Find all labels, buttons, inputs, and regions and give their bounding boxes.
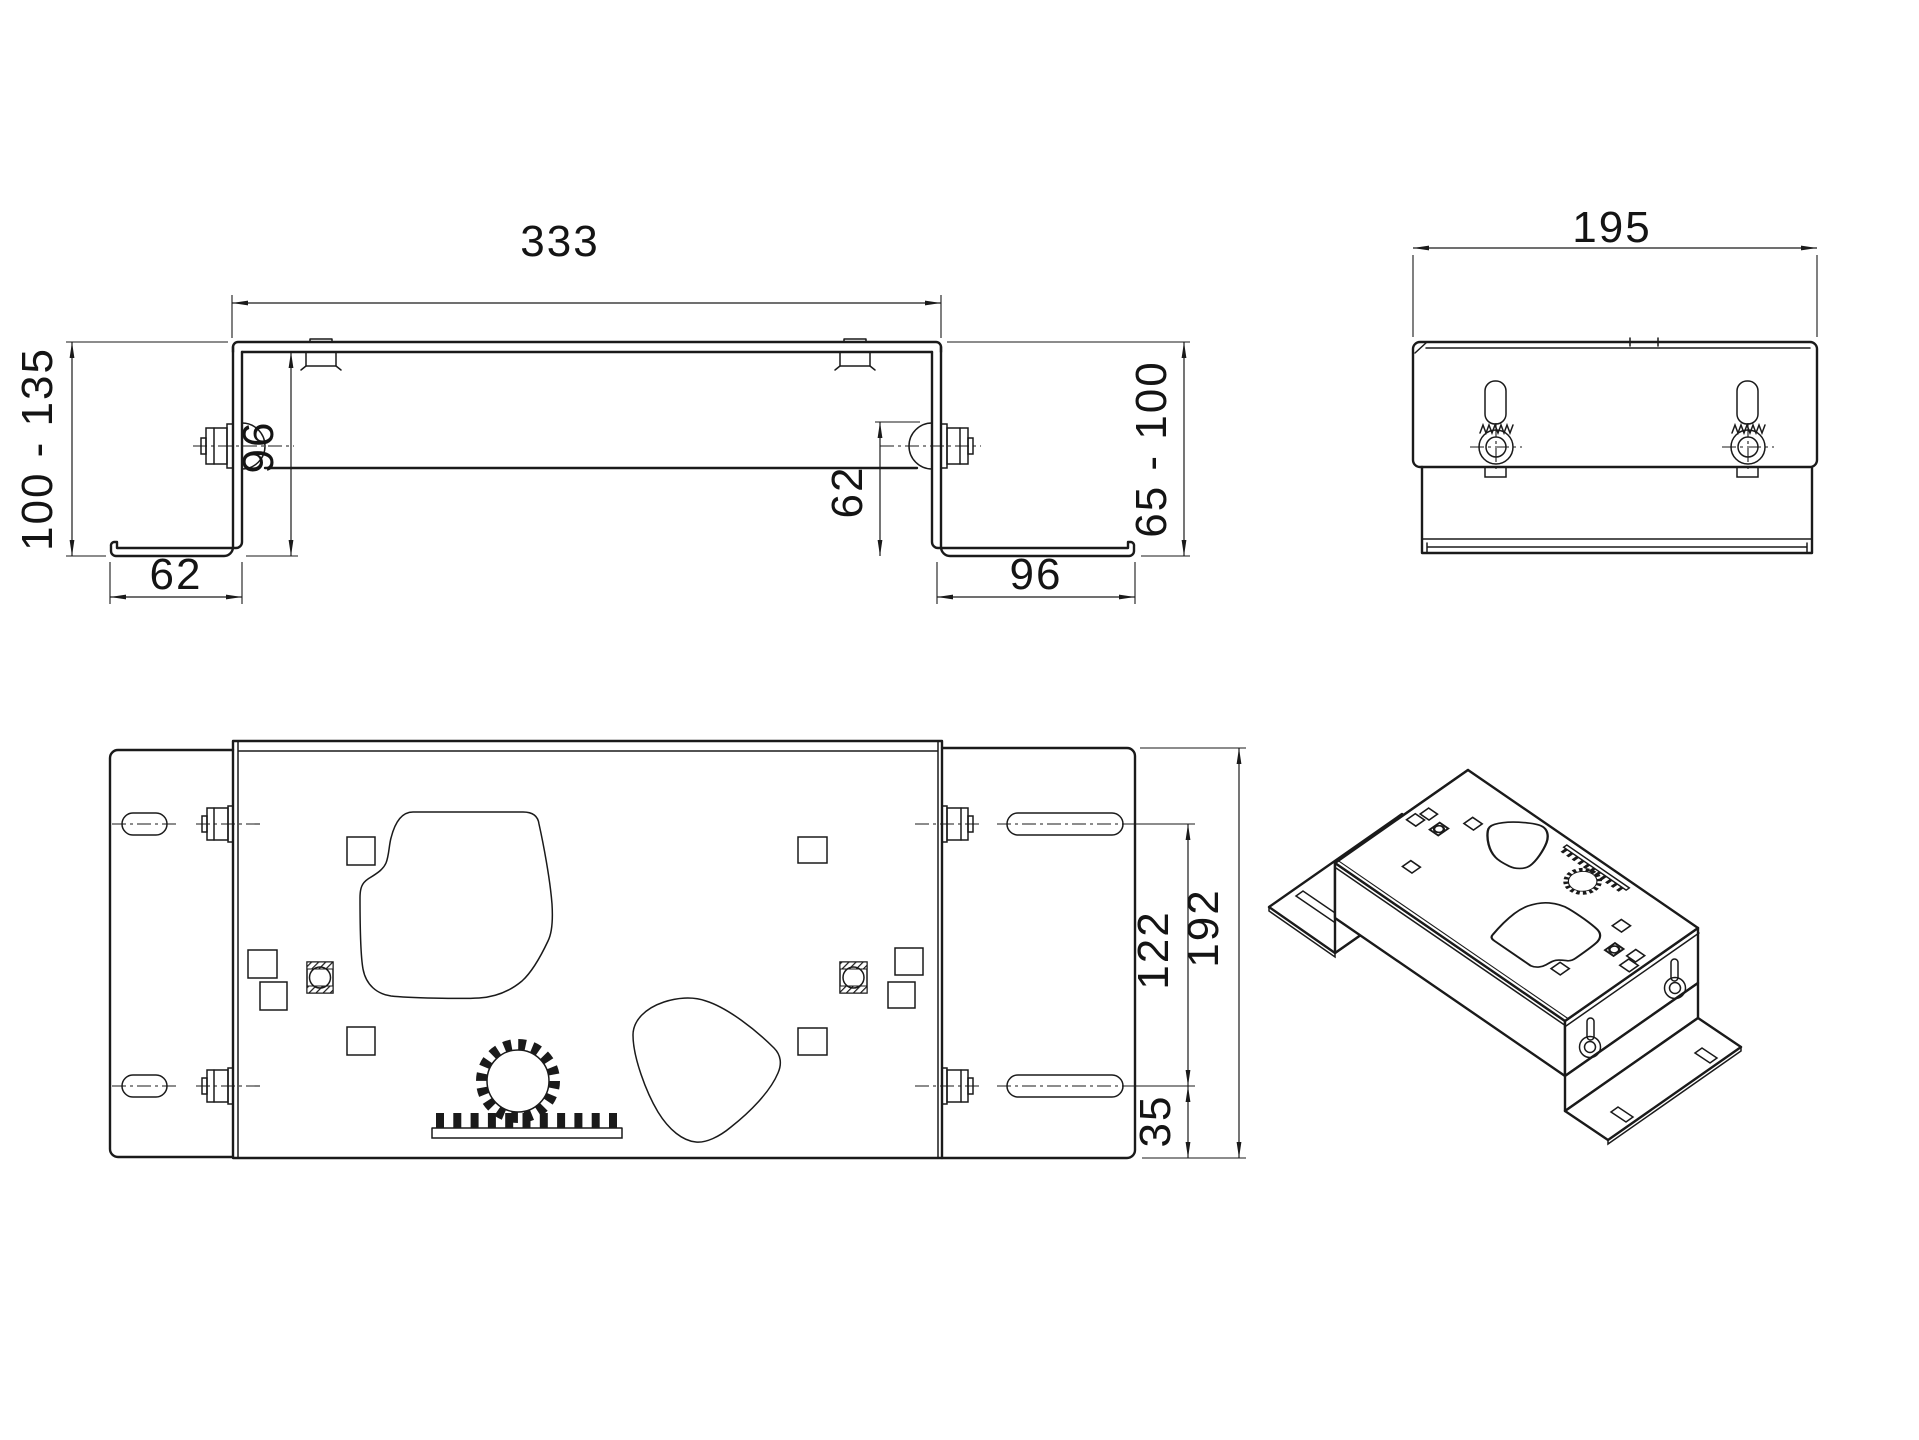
side-bolt-assembly-left — [1470, 381, 1522, 477]
plan-cage-nut-right — [840, 962, 867, 993]
dim-text-35: 35 — [1131, 1095, 1180, 1148]
isometric-view — [1269, 770, 1741, 1144]
front-right-leg-foot — [932, 347, 1134, 556]
dim-text-65-100: 65 - 100 — [1127, 360, 1176, 537]
front-cage-nut-right — [835, 339, 875, 370]
front-left-leg-foot — [111, 347, 242, 556]
front-bolt-right — [880, 423, 981, 469]
front-top-plate — [233, 342, 941, 352]
front-dim-width: 333 — [232, 217, 941, 338]
plan-bend-lines — [238, 741, 938, 1158]
plan-flange-slots — [112, 813, 1133, 1097]
dim-text-100-135: 100 - 135 — [13, 347, 62, 551]
front-dim-leg-left: 96 — [234, 352, 298, 556]
front-dim-foot-left: 62 — [110, 550, 242, 604]
dim-text-96-left: 96 — [234, 421, 283, 474]
plan-main-plate — [233, 741, 942, 1158]
dim-text-333: 333 — [520, 217, 599, 266]
side-bolt-assembly-right — [1722, 381, 1774, 477]
plan-bolt-left-top — [196, 806, 260, 842]
front-dim-foot-right: 96 — [937, 550, 1135, 604]
plan-cutout-pick — [633, 998, 780, 1142]
front-view: 333 100 - 135 96 62 65 - 100 — [13, 217, 1190, 604]
plan-gear-cutout — [482, 1045, 555, 1118]
dim-text-62-right: 62 — [823, 466, 872, 519]
side-view: 195 — [1413, 203, 1817, 553]
front-dim-height-right: 65 - 100 — [947, 342, 1190, 556]
top-view: 122 35 192 — [110, 741, 1246, 1158]
dim-text-62-left: 62 — [150, 550, 203, 599]
side-body — [1413, 342, 1817, 467]
side-dim-width: 195 — [1413, 203, 1817, 337]
plan-square-holes — [248, 837, 923, 1055]
plan-cage-nut-left — [307, 962, 333, 993]
dim-text-96-right: 96 — [1010, 550, 1063, 599]
dim-text-122: 122 — [1129, 910, 1178, 989]
plan-cutout-motor — [360, 812, 552, 998]
plan-rack-cutout — [432, 1121, 622, 1139]
plan-bolt-left-bottom — [196, 1068, 260, 1104]
drawing-sheet: 333 100 - 135 96 62 65 - 100 — [0, 0, 1919, 1440]
front-dim-height-left: 100 - 135 — [13, 342, 228, 556]
dim-text-192: 192 — [1179, 888, 1228, 967]
plan-dim-flange-offset: 35 — [1131, 1086, 1188, 1158]
dim-text-195: 195 — [1572, 203, 1651, 252]
front-dim-drop-right: 62 — [823, 422, 920, 556]
front-cage-nut-left — [301, 339, 341, 370]
plan-bolt-right-top — [915, 806, 979, 842]
engineering-drawing: 333 100 - 135 96 62 65 - 100 — [0, 0, 1919, 1440]
side-lower-panel — [1422, 467, 1812, 553]
plan-bolt-right-bottom — [915, 1068, 979, 1104]
